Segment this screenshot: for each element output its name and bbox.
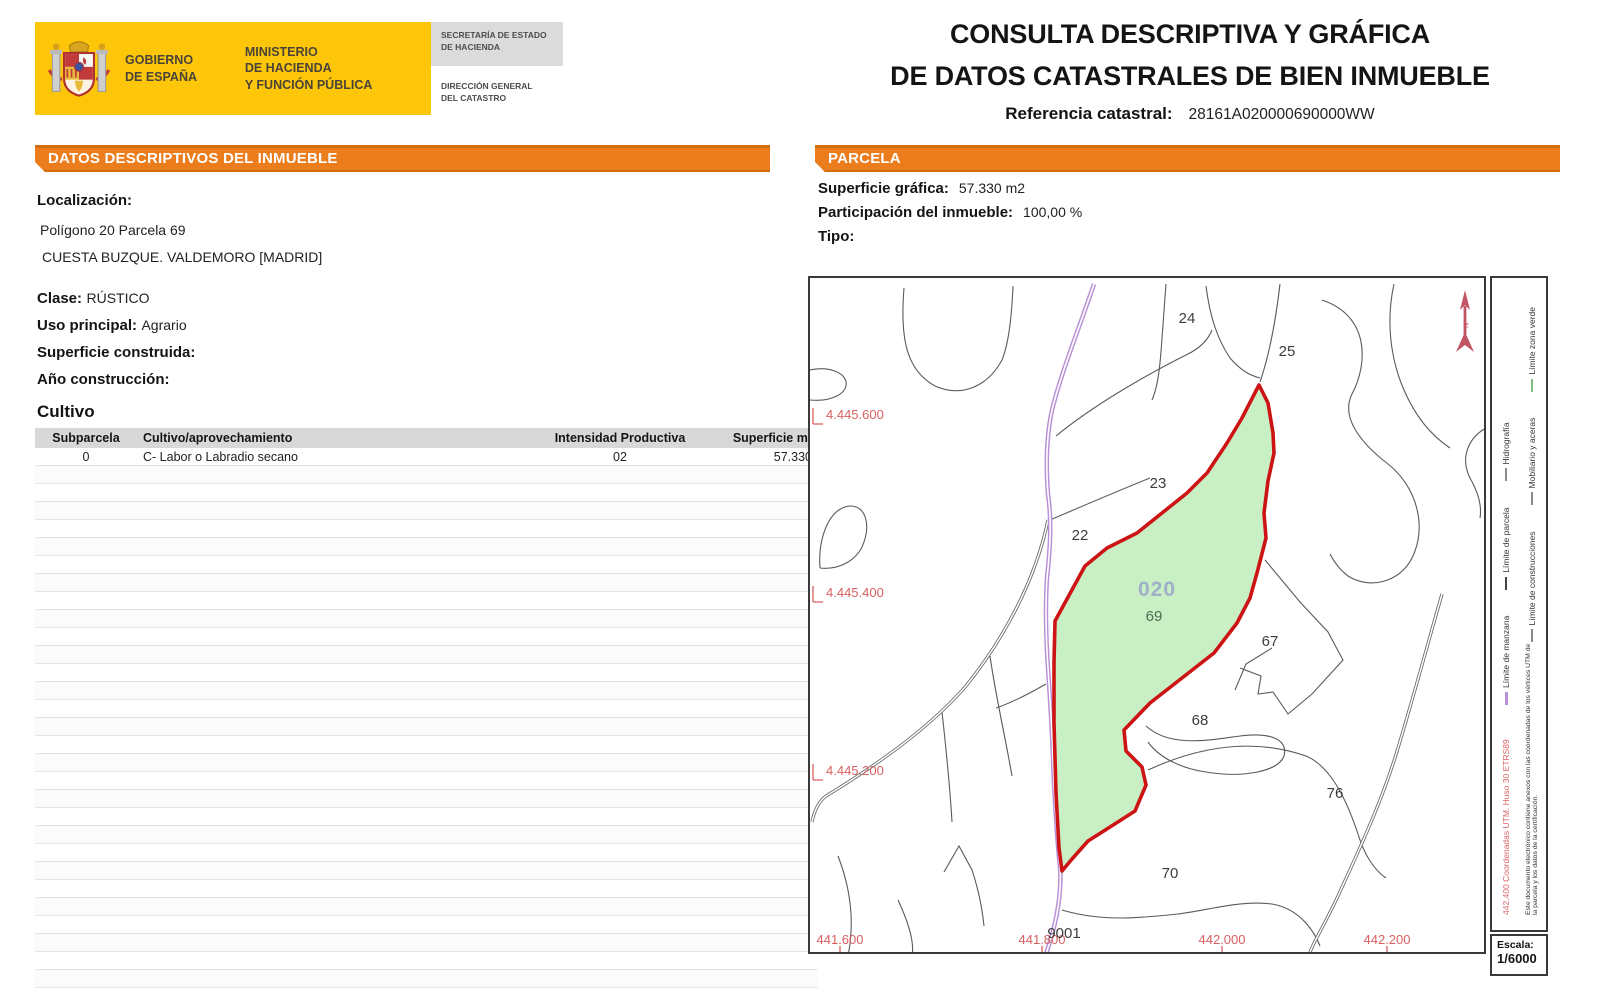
parcel-label-9001: 9001 — [1047, 925, 1080, 942]
anio-construccion-row: Año construcción: — [37, 371, 170, 389]
table-row-empty — [35, 628, 818, 646]
table-row-empty — [35, 556, 818, 574]
table-row-empty — [35, 520, 818, 538]
map-legend-box: 442.400 Coordenadas UTM. Huso 30 ETRS89 … — [1490, 276, 1548, 932]
cultivo-header-row: Subparcela Cultivo/aprovechamiento Inten… — [35, 428, 818, 448]
col-cultivo: Cultivo/aprovechamiento — [137, 428, 529, 448]
cultivo-table-body: 0C- Labor o Labradio secano0257.330 — [35, 448, 818, 1005]
table-row-empty — [35, 736, 818, 754]
table-row-empty — [35, 718, 818, 736]
document-title-line1: CONSULTA DESCRIPTIVA Y GRÁFICA — [810, 14, 1570, 56]
table-row-empty — [35, 502, 818, 520]
legend-line-inner: 442.400 Coordenadas UTM. Huso 30 ETRS89 … — [1493, 281, 1519, 929]
table-row-empty — [35, 916, 818, 934]
table-row-empty — [35, 592, 818, 610]
cadastral-document-page: GOBIERNO DE ESPAÑA MINISTERIO DE HACIEND… — [0, 0, 1600, 1005]
svg-text:N: N — [1462, 323, 1471, 328]
table-row-empty — [35, 646, 818, 664]
legend-item-construcciones: Límite de construcciones — [1527, 531, 1537, 642]
table-row-empty — [35, 844, 818, 862]
coord-bottom-2: 442.000 — [1199, 932, 1246, 947]
col-superficie: Superficie m² — [711, 428, 818, 448]
parcel-label-25: 25 — [1279, 343, 1296, 360]
highlight-code-label: 020 — [1138, 578, 1176, 601]
section-header-datos: DATOS DESCRIPTIVOS DEL INMUEBLE — [35, 145, 770, 172]
legend-item-hidrografia: Hidrografía — [1501, 422, 1511, 481]
table-row-empty — [35, 466, 818, 484]
superficie-grafica-label: Superficie gráfica: — [818, 180, 949, 197]
table-row-empty — [35, 952, 818, 970]
scale-value: 1/6000 — [1497, 951, 1546, 966]
parcel-label-76: 76 — [1327, 785, 1344, 802]
table-row-empty — [35, 790, 818, 808]
mobiliario-line-sample-icon — [1531, 492, 1533, 505]
parcel-label-23: 23 — [1150, 475, 1167, 492]
localizacion-line2: CUESTA BUZQUE. VALDEMORO [MADRID] — [42, 249, 322, 265]
col-subparcela: Subparcela — [35, 428, 137, 448]
section-header-parcela: PARCELA — [815, 145, 1560, 172]
parcela-line-sample-icon — [1505, 577, 1507, 590]
legend-item-manzana-label: Límite de manzana — [1501, 616, 1511, 688]
legend-item-zonaverde-label: Límite zona verde — [1527, 307, 1537, 375]
parcel-label-22: 22 — [1072, 527, 1089, 544]
cultivo-title: Cultivo — [37, 402, 95, 422]
legend-item-mobiliario: Mobiliario y aceras — [1527, 418, 1537, 506]
legend-coord-text: 442.400 Coordenadas UTM. Huso 30 ETRS89 — [1501, 705, 1511, 915]
clase-value: RÚSTICO — [86, 290, 149, 306]
localizacion-label: Localización: — [37, 192, 132, 209]
table-row-empty — [35, 898, 818, 916]
superficie-construida-label: Superficie construida: — [37, 344, 195, 361]
hidrografia-line-sample-icon — [1505, 469, 1507, 482]
tipo-row: Tipo: — [818, 228, 864, 245]
parcel-label-24: 24 — [1179, 310, 1196, 327]
secretaria-box: SECRETARÍA DE ESTADO DE HACIENDA — [431, 22, 563, 66]
highlighted-parcel-polygon — [1054, 385, 1274, 871]
parcel-label-70: 70 — [1162, 865, 1179, 882]
superficie-grafica-value: 57.330 m2 — [959, 180, 1025, 196]
table-row-empty — [35, 772, 818, 790]
clase-row: Clase: RÚSTICO — [37, 290, 149, 308]
table-row-empty — [35, 610, 818, 628]
table-row-empty — [35, 808, 818, 826]
table-row-empty — [35, 880, 818, 898]
uso-row: Uso principal: Agrario — [37, 317, 187, 335]
zonaverde-line-sample-icon — [1531, 379, 1533, 392]
table-row-empty — [35, 988, 818, 1005]
table-row: 0C- Labor o Labradio secano0257.330 — [35, 448, 818, 466]
gobierno-text: GOBIERNO DE ESPAÑA — [125, 52, 231, 85]
reference-value: 28161A020000690000WW — [1189, 106, 1375, 124]
table-row-empty — [35, 970, 818, 988]
government-logo-box: GOBIERNO DE ESPAÑA MINISTERIO DE HACIEND… — [35, 22, 431, 115]
table-row-empty — [35, 754, 818, 772]
table-row-empty — [35, 538, 818, 556]
superficie-grafica-row: Superficie gráfica: 57.330 m2 — [818, 180, 1025, 197]
cultivo-table: Subparcela Cultivo/aprovechamiento Inten… — [35, 428, 818, 1005]
cadastral-map-box: 4.445.600 4.445.400 4.445.200 441.600 44… — [808, 276, 1486, 954]
col-intensidad: Intensidad Productiva — [529, 428, 711, 448]
legend-item-manzana: Límite de manzana — [1501, 616, 1511, 705]
map-scale-box: Escala: 1/6000 — [1490, 934, 1548, 976]
table-row-empty — [35, 826, 818, 844]
superficie-construida-row: Superficie construida: — [37, 344, 195, 362]
manzana-line-sample-icon — [1505, 692, 1508, 705]
table-row-empty — [35, 700, 818, 718]
legend-item-construcciones-label: Límite de construcciones — [1527, 531, 1537, 625]
construcciones-line-sample-icon — [1531, 629, 1533, 642]
cultivo-table-wrap: Subparcela Cultivo/aprovechamiento Inten… — [35, 428, 770, 1005]
north-arrow-icon: N — [1456, 290, 1474, 352]
legend-item-zonaverde: Límite zona verde — [1527, 307, 1537, 392]
legend-item-mobiliario-label: Mobiliario y aceras — [1527, 418, 1537, 489]
cadastral-reference: Referencia catastral: 28161A020000690000… — [810, 104, 1570, 124]
spain-coat-of-arms-icon — [47, 36, 111, 102]
uso-label: Uso principal: — [37, 317, 137, 334]
table-row-empty — [35, 934, 818, 952]
coord-left-0: 4.445.600 — [826, 407, 884, 422]
localizacion-line1: Polígono 20 Parcela 69 — [40, 222, 186, 238]
ministerio-text: MINISTERIO DE HACIENDA Y FUNCIÓN PÚBLICA — [245, 44, 431, 93]
legend-line-outer: Este documento electrónico contiene anex… — [1519, 281, 1545, 929]
participacion-value: 100,00 % — [1023, 204, 1082, 220]
table-row-empty — [35, 862, 818, 880]
uso-value: Agrario — [141, 317, 186, 333]
clase-label: Clase: — [37, 290, 82, 307]
parcel-label-67: 67 — [1262, 633, 1279, 650]
legend-disclaimer-text: Este documento electrónico contiene anex… — [1525, 642, 1540, 915]
coord-bottom-3: 442.200 — [1364, 932, 1411, 947]
tipo-label: Tipo: — [818, 228, 854, 245]
participacion-label: Participación del inmueble: — [818, 204, 1013, 221]
parcel-label-68: 68 — [1192, 712, 1209, 729]
scale-label: Escala: — [1497, 939, 1546, 951]
coord-left-2: 4.445.200 — [826, 763, 884, 778]
direccion-general-text: DIRECCIÓN GENERAL DEL CATASTRO — [441, 80, 571, 105]
reference-label: Referencia catastral: — [1005, 104, 1172, 124]
document-title: CONSULTA DESCRIPTIVA Y GRÁFICA DE DATOS … — [810, 14, 1570, 98]
table-row-empty — [35, 664, 818, 682]
coord-bottom-0: 441.600 — [817, 932, 864, 947]
coord-left-1: 4.445.400 — [826, 585, 884, 600]
document-title-line2: DE DATOS CATASTRALES DE BIEN INMUEBLE — [810, 56, 1570, 98]
participacion-row: Participación del inmueble: 100,00 % — [818, 204, 1082, 221]
highlight-parcel-label: 69 — [1146, 608, 1163, 625]
legend-item-parcela-label: Límite de parcela — [1501, 508, 1511, 573]
table-row-empty — [35, 682, 818, 700]
anio-construccion-label: Año construcción: — [37, 371, 170, 388]
table-row-empty — [35, 574, 818, 592]
table-row-empty — [35, 484, 818, 502]
legend-item-hidrografia-label: Hidrografía — [1501, 422, 1511, 464]
map-legend-rotated: 442.400 Coordenadas UTM. Huso 30 ETRS89 … — [1493, 281, 1545, 929]
legend-item-parcela: Límite de parcela — [1501, 508, 1511, 590]
cadastral-map: 4.445.600 4.445.400 4.445.200 441.600 44… — [810, 278, 1484, 952]
